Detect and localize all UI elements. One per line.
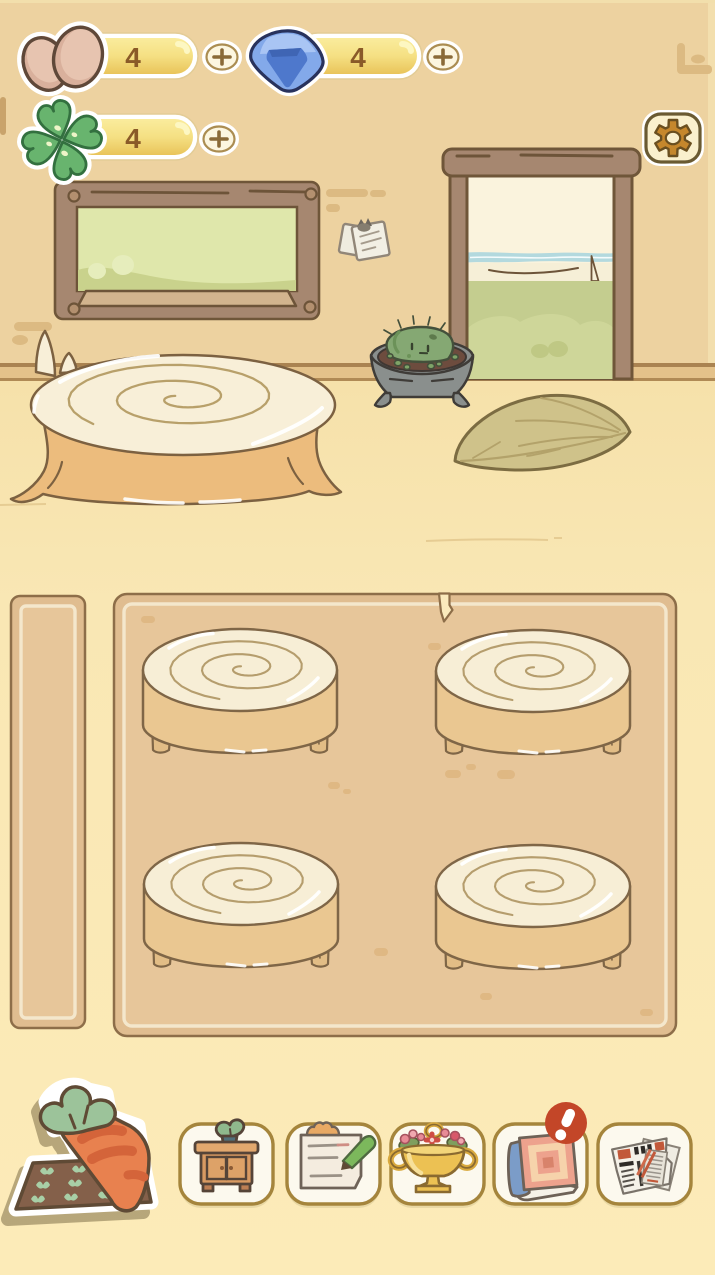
- svg-text:4: 4: [350, 42, 366, 73]
- svg-text:4: 4: [125, 42, 141, 73]
- svg-text:4: 4: [125, 123, 141, 154]
